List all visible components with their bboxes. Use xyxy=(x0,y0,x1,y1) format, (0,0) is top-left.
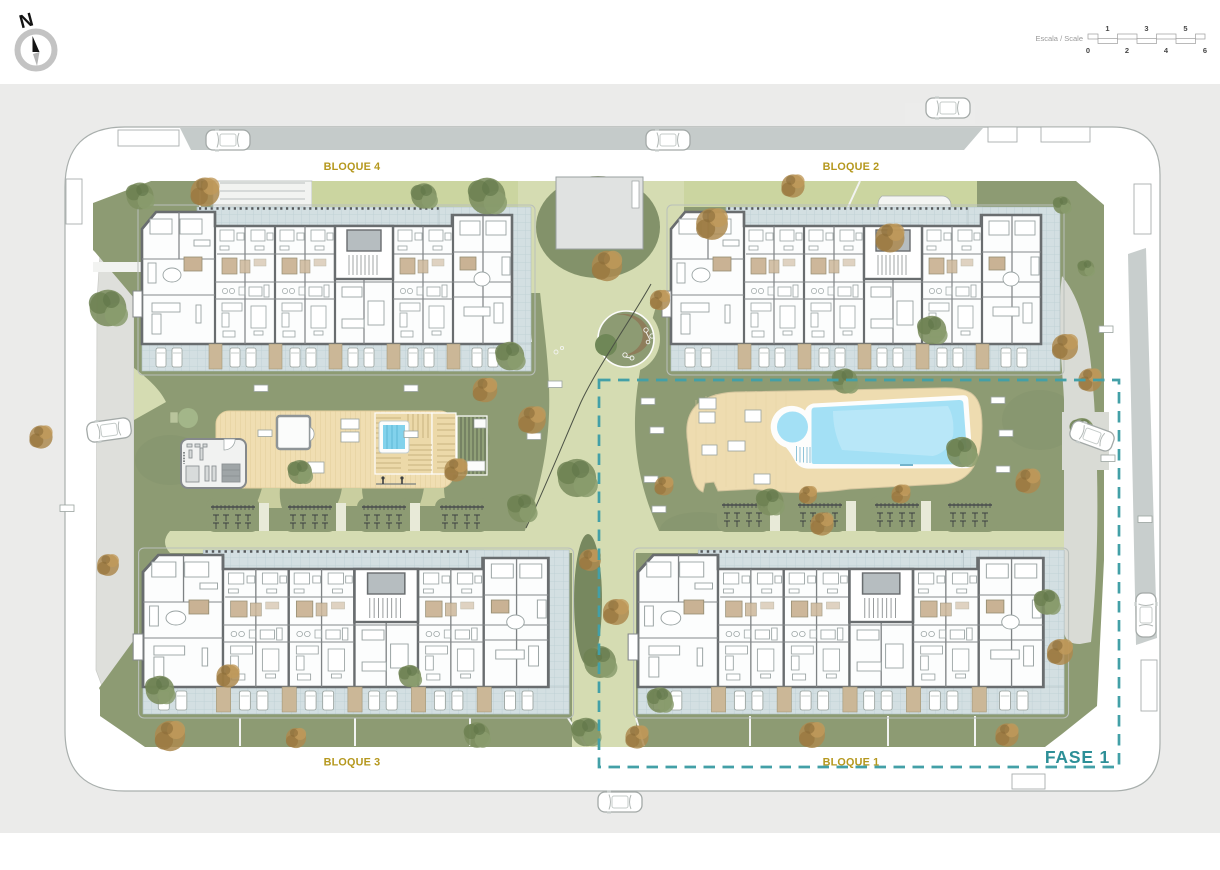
svg-text:2: 2 xyxy=(1125,46,1129,55)
svg-text:BLOQUE 2: BLOQUE 2 xyxy=(823,161,880,173)
svg-text:1: 1 xyxy=(1105,24,1109,33)
svg-text:FASE 1: FASE 1 xyxy=(1045,747,1110,767)
svg-text:BLOQUE 3: BLOQUE 3 xyxy=(324,757,381,769)
svg-text:5: 5 xyxy=(1183,24,1187,33)
svg-text:3: 3 xyxy=(1144,24,1148,33)
svg-text:BLOQUE 1: BLOQUE 1 xyxy=(823,757,880,769)
svg-text:6: 6 xyxy=(1203,46,1207,55)
svg-text:0: 0 xyxy=(1086,46,1090,55)
svg-text:Escala / Scale: Escala / Scale xyxy=(1035,34,1083,43)
svg-text:BLOQUE 4: BLOQUE 4 xyxy=(324,161,381,173)
